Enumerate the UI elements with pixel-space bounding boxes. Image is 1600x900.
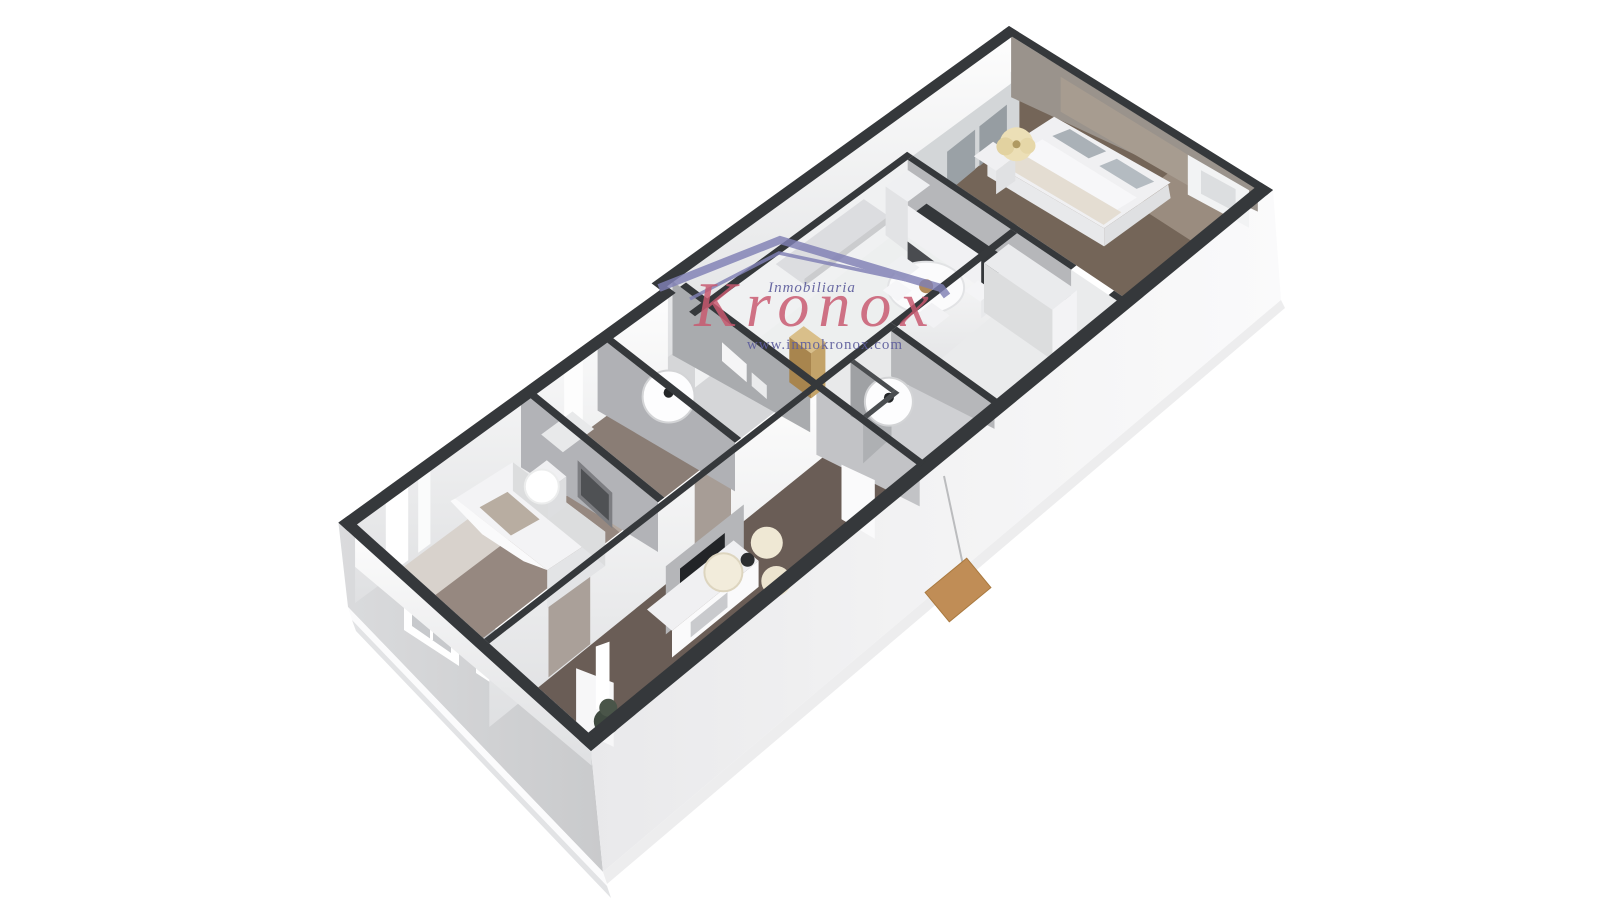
svg-text:Kronox: Kronox (693, 269, 938, 340)
svg-text:www.inmokronox.com: www.inmokronox.com (747, 337, 903, 353)
